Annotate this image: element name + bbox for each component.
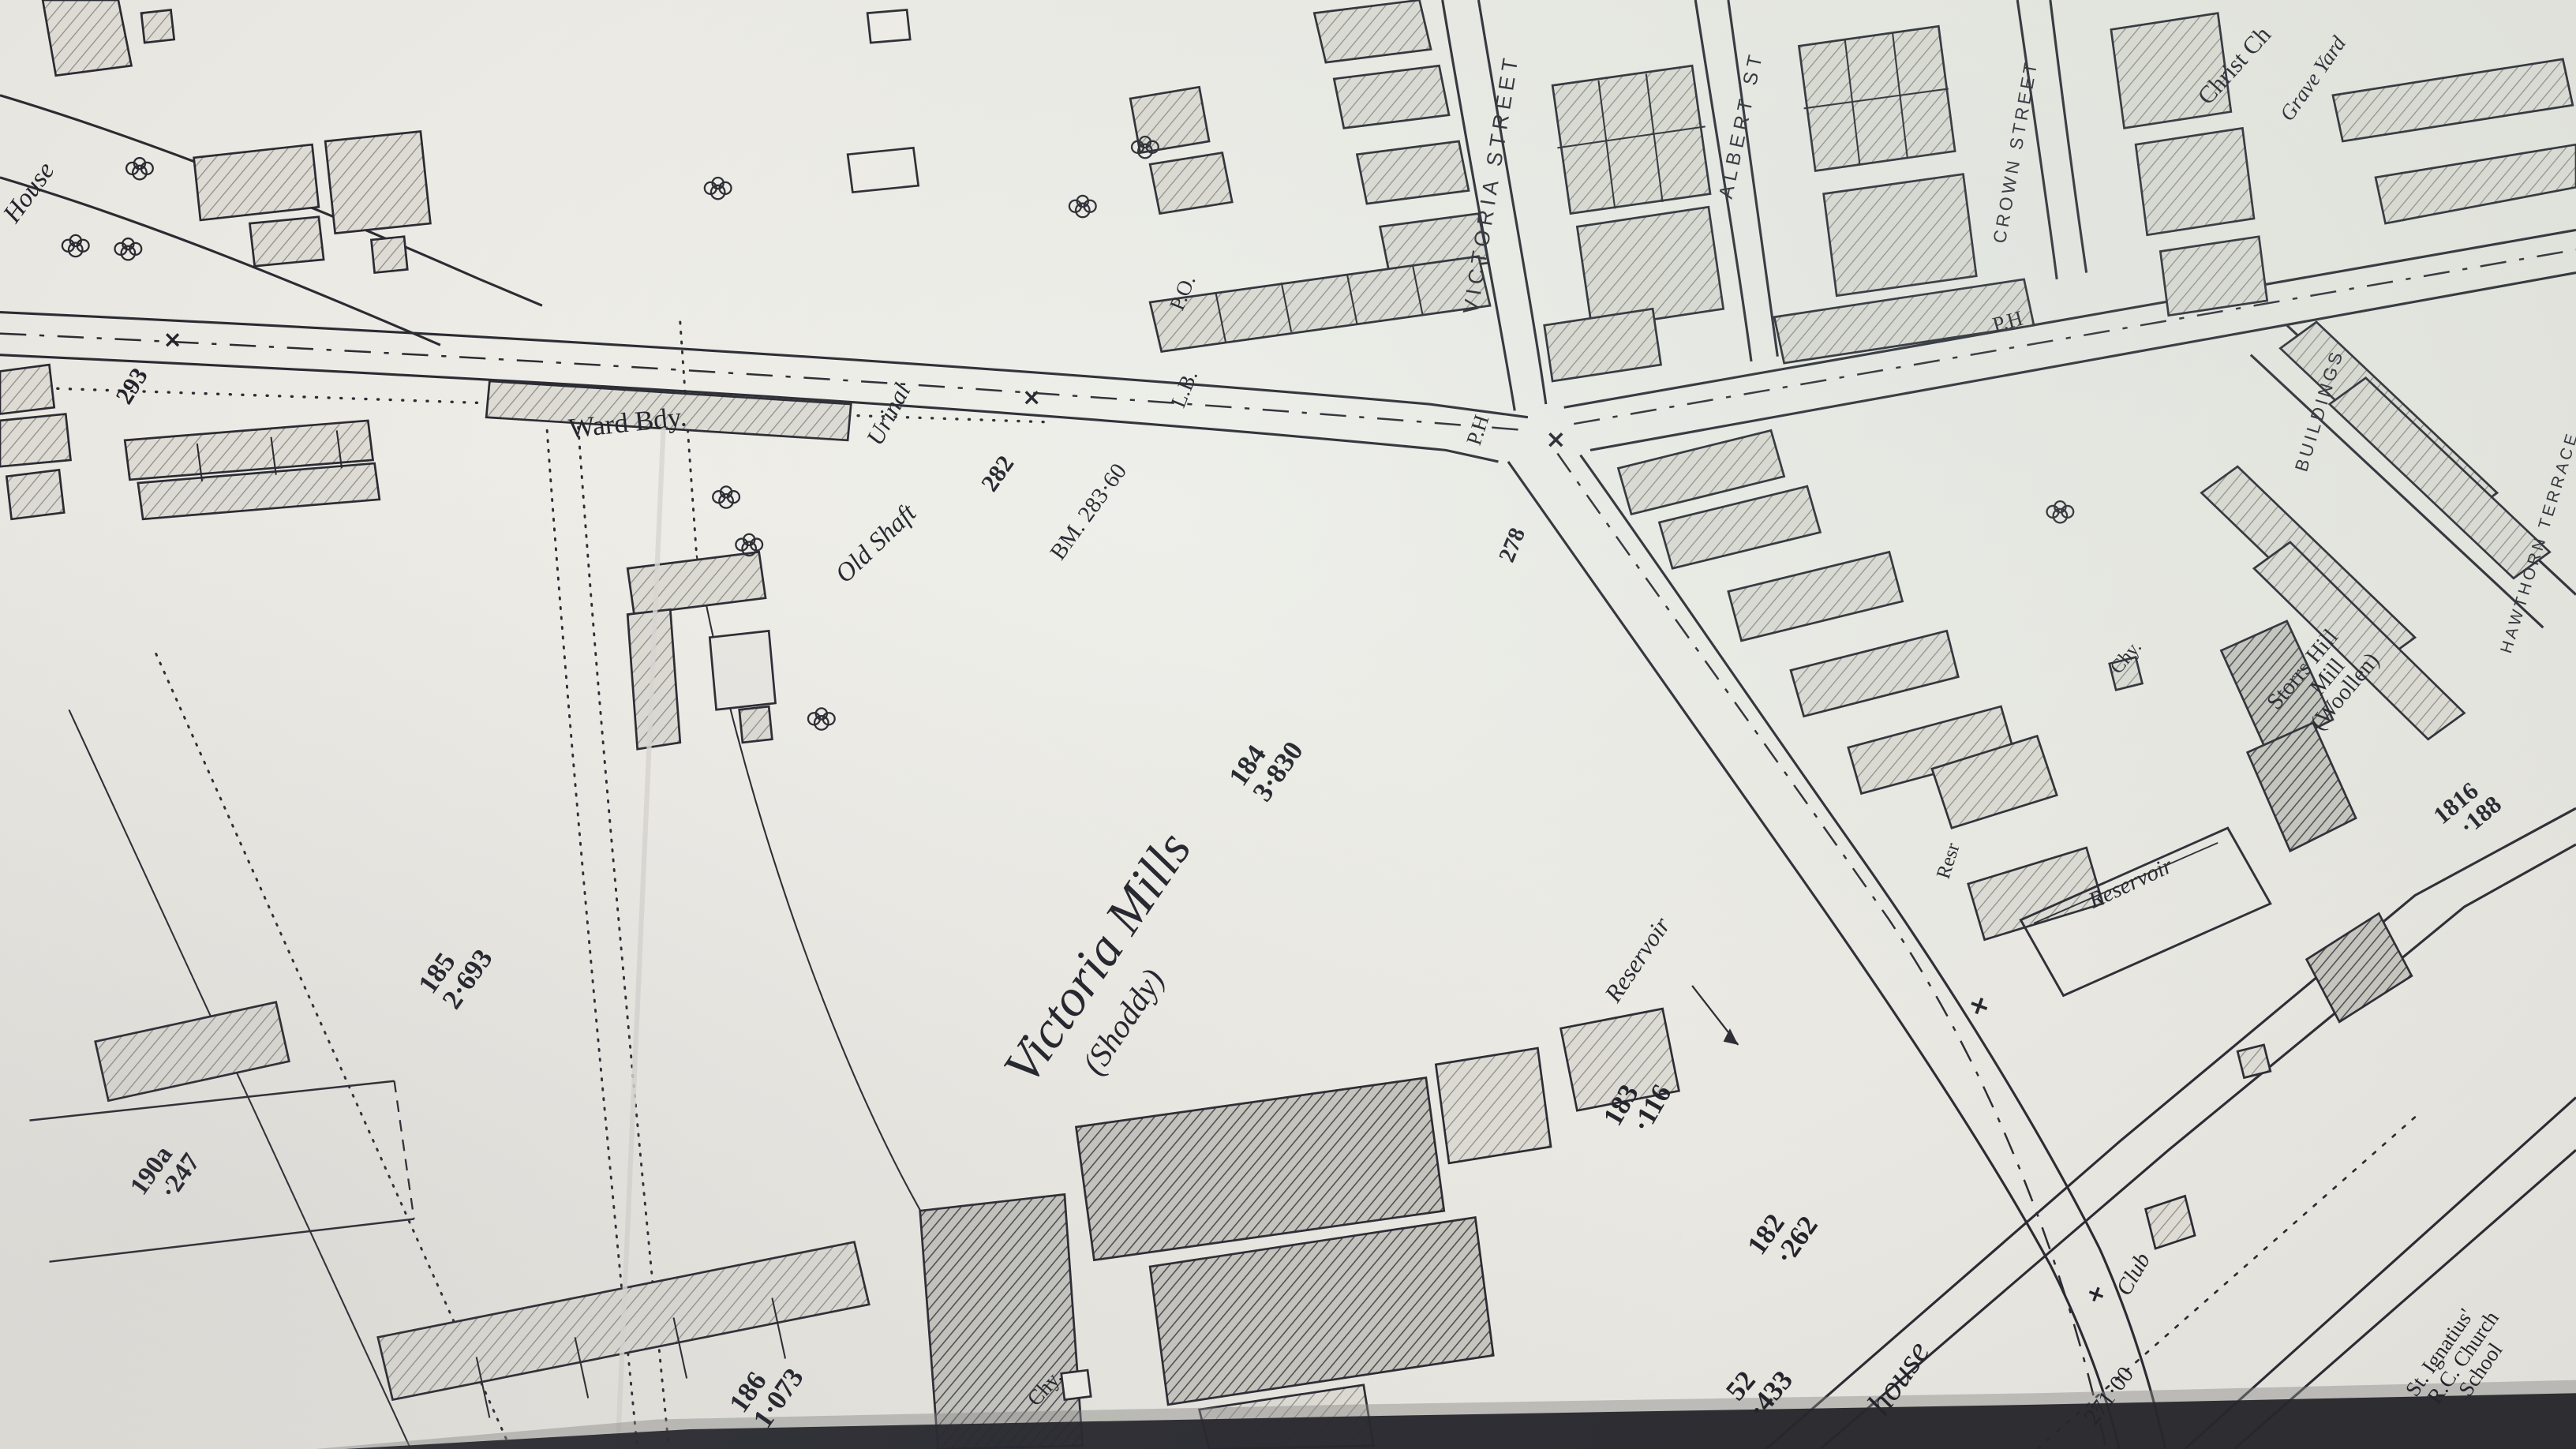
photo-color-cast <box>0 0 2576 1449</box>
historic-map-sheet: Ward Bdy.UrinalOld Shaft282BM. 283·60293… <box>0 0 2576 1449</box>
